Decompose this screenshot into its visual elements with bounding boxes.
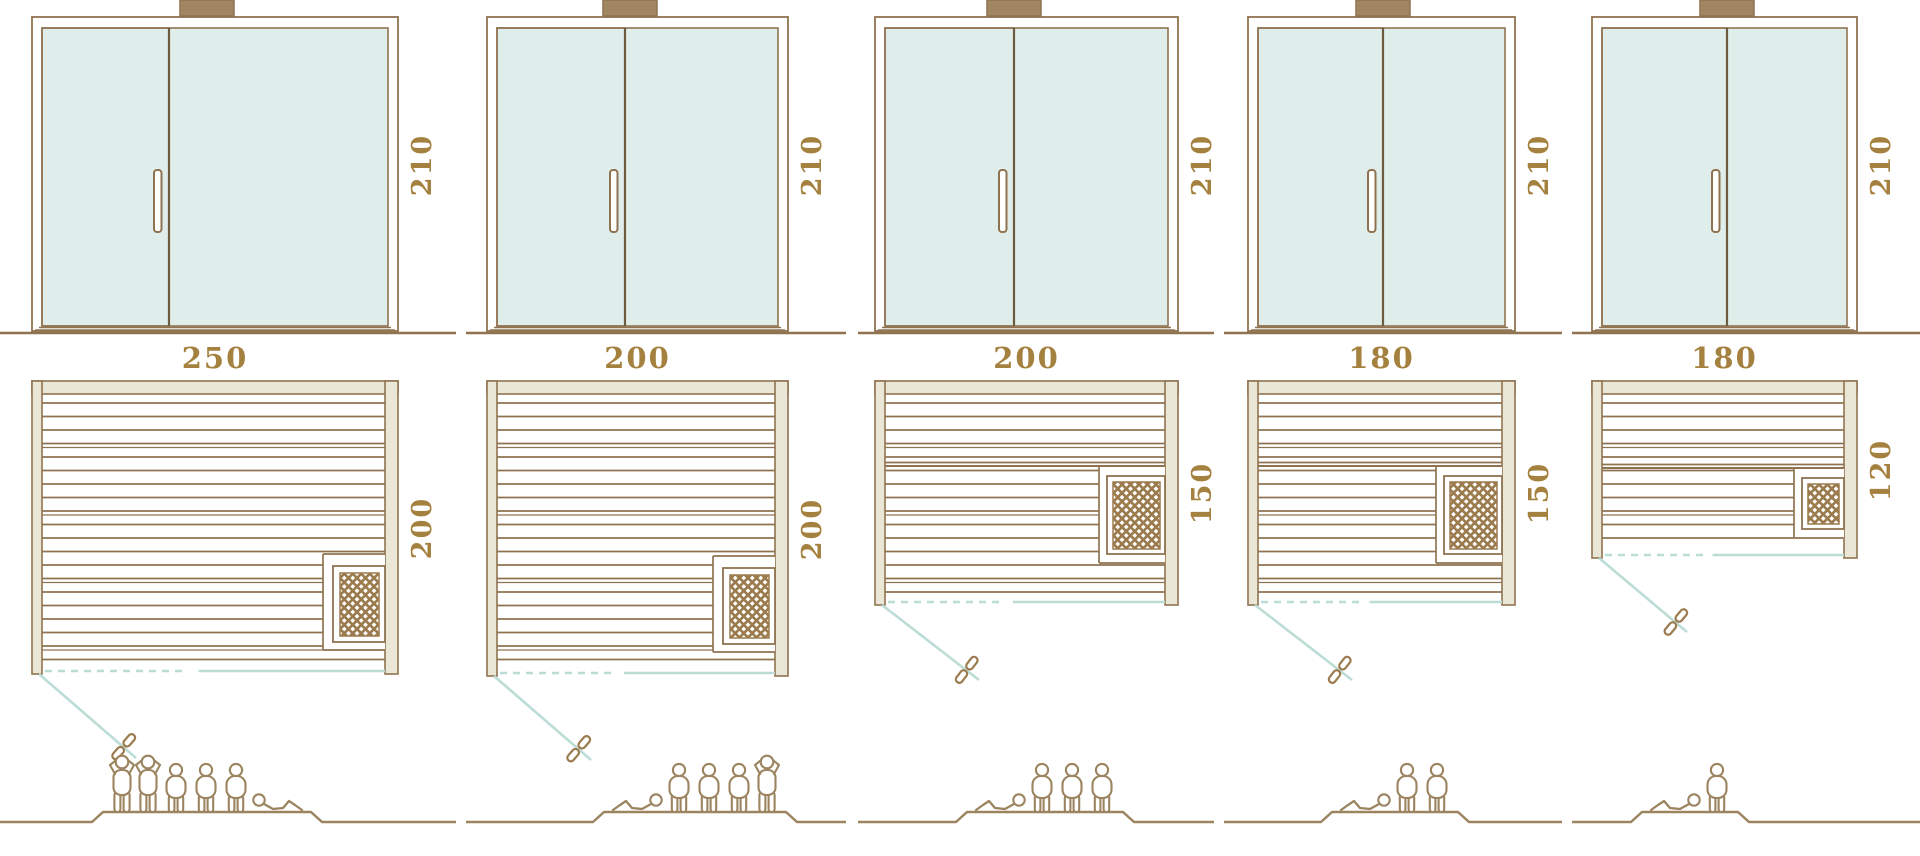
plan-width-label: 200	[487, 342, 788, 374]
door-height-label: 210	[406, 125, 440, 205]
floor-plan	[1248, 381, 1515, 684]
door-elevation	[32, 0, 398, 331]
capacity-people	[466, 756, 846, 822]
capacity-people	[1572, 764, 1920, 822]
door-elevation	[487, 0, 788, 331]
unit-sauna-200x200	[466, 0, 846, 822]
door-swing	[1255, 605, 1352, 684]
plan-depth-label: 150	[1186, 453, 1220, 533]
diagram-canvas	[0, 0, 1920, 856]
unit-sauna-200x150	[858, 0, 1214, 822]
capacity-people	[1224, 764, 1562, 822]
plan-depth-label: 120	[1865, 430, 1899, 510]
door-swing	[494, 676, 592, 763]
heater	[323, 554, 385, 650]
unit-sauna-250x200	[0, 0, 456, 822]
capacity-people	[0, 756, 456, 822]
heater	[713, 556, 775, 652]
door-elevation	[1248, 0, 1515, 331]
floor-plan	[32, 381, 398, 761]
plan-width-label: 200	[875, 342, 1178, 374]
plan-depth-label: 200	[796, 489, 830, 569]
door-elevation	[1592, 0, 1857, 331]
door-swing	[882, 605, 979, 684]
plan-depth-label: 200	[406, 488, 440, 568]
heater	[885, 463, 1165, 565]
unit-sauna-180x150	[1224, 0, 1562, 822]
heater	[1602, 465, 1844, 540]
heater	[1258, 463, 1502, 565]
floor-plan	[1592, 381, 1857, 636]
floor-plan	[487, 381, 788, 763]
door-swing	[39, 674, 137, 761]
door-height-label: 210	[1523, 125, 1557, 205]
door-height-label: 210	[1865, 125, 1899, 205]
door-elevation	[875, 0, 1178, 331]
unit-sauna-180x120	[1572, 0, 1920, 822]
plan-width-label: 180	[1592, 342, 1857, 374]
floor-plan	[875, 381, 1178, 684]
plan-depth-label: 150	[1523, 453, 1557, 533]
door-swing	[1599, 558, 1689, 636]
plan-width-label: 250	[32, 342, 398, 374]
capacity-people	[858, 764, 1214, 822]
door-height-label: 210	[1186, 125, 1220, 205]
sauna-size-diagram: 250 200 200 180 180 210 210 210 210 210 …	[0, 0, 1920, 856]
plan-width-label: 180	[1248, 342, 1515, 374]
door-height-label: 210	[796, 125, 830, 205]
